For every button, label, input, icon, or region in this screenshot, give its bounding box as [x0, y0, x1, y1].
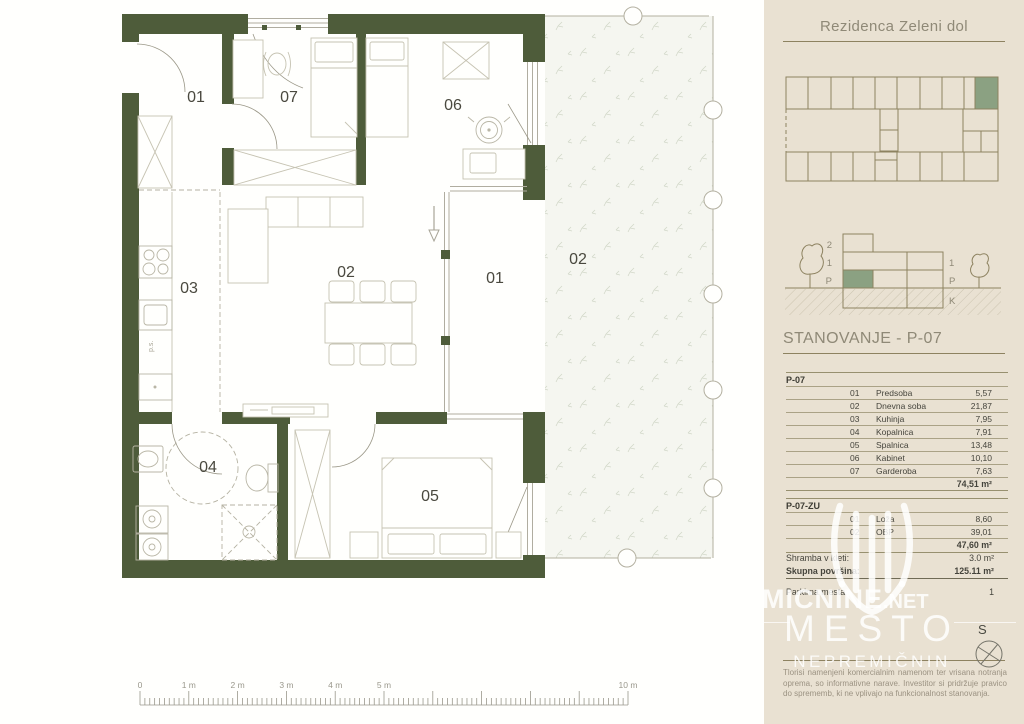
- scale-label: 3 m: [279, 680, 293, 690]
- room-bathroom: [133, 424, 278, 560]
- scale-label: 10 m: [619, 680, 638, 690]
- room-label: 01: [486, 270, 504, 287]
- scale-label: 0: [138, 680, 143, 690]
- room-label: 01: [187, 89, 205, 106]
- highlighted-unit: [975, 77, 998, 109]
- scale-bar: 01 m2 m3 m4 m5 m10 m: [138, 680, 638, 705]
- area-row: 01Loža8,60: [786, 512, 1008, 525]
- room-label: 03: [180, 280, 198, 297]
- page: p.s.: [0, 0, 1024, 724]
- scale-label: 1 m: [182, 680, 196, 690]
- svg-text:1: 1: [949, 258, 954, 269]
- area-row: 02Dnevna soba21,87: [786, 399, 1008, 412]
- area-group-total: 74,51 m²: [786, 477, 1008, 491]
- area-table: P-0701Predsoba5,5702Dnevna soba21,8703Ku…: [786, 372, 1008, 560]
- highlighted-floor: [843, 270, 873, 288]
- area-row: 03Kuhinja7,95: [786, 412, 1008, 425]
- brand-name: MESTO: [764, 608, 980, 650]
- loggia-glazing: [441, 187, 527, 420]
- room-garderoba: [233, 38, 357, 185]
- floor-plan-panel: p.s.: [0, 0, 764, 724]
- room-label: 02: [569, 251, 587, 268]
- unit-title: STANOVANJE - P-07: [783, 330, 1005, 354]
- room-bedroom: [295, 424, 521, 558]
- svg-text:K: K: [949, 296, 956, 307]
- svg-text:1: 1: [827, 258, 832, 269]
- scale-label: 5 m: [377, 680, 391, 690]
- area-group: P-07-ZU01Loža8,6002OBP39,0147,60 m²: [786, 498, 1008, 552]
- area-row: 05Spalnica13,48: [786, 438, 1008, 451]
- area-row: 04Kopalnica7,91: [786, 425, 1008, 438]
- area-row: 06Kabinet10,10: [786, 451, 1008, 464]
- svg-text:S: S: [978, 622, 987, 637]
- north-arrow-icon: S: [962, 616, 1012, 674]
- room-label: 06: [444, 97, 462, 114]
- svg-text:P: P: [949, 276, 955, 287]
- summary-row: Skupna površina:125.11 m²: [786, 565, 1008, 579]
- summary-rows: Shramba v kleti:3.0 m²Skupna površina:12…: [786, 552, 1008, 598]
- area-group-header: P-07-ZU: [786, 498, 1008, 512]
- sidebar: Rezidenca Zeleni dol: [764, 0, 1024, 724]
- room-label: 04: [199, 459, 217, 476]
- svg-text:P: P: [826, 276, 832, 287]
- area-row: 01Predsoba5,57: [786, 386, 1008, 399]
- room-living: [220, 192, 439, 417]
- kabinet-window: [508, 62, 538, 145]
- floor-plan-svg: p.s.: [0, 0, 764, 724]
- terrace-obp: [545, 7, 722, 567]
- area-row: 07Garderoba7,63: [786, 464, 1008, 477]
- area-row: 02OBP39,01: [786, 525, 1008, 538]
- project-title: Rezidenca Zeleni dol: [783, 18, 1005, 42]
- area-group: P-0701Predsoba5,5702Dnevna soba21,8703Ku…: [786, 372, 1008, 491]
- summary-row: Parkirna mesta:1: [786, 586, 1008, 599]
- building-section: 2 1 P 1 P K: [785, 230, 1001, 324]
- room-label: 02: [337, 264, 355, 281]
- ps-label: p.s.: [148, 341, 155, 352]
- scale-label: 4 m: [328, 680, 342, 690]
- svg-text:2: 2: [827, 240, 832, 251]
- room-kitchen: p.s.: [139, 192, 172, 412]
- room-label: 07: [280, 89, 298, 106]
- scale-label: 2 m: [231, 680, 245, 690]
- brand-rule-left: [764, 622, 790, 623]
- room-label: 05: [421, 488, 439, 505]
- site-key-plan: [785, 76, 1001, 182]
- entry-arrow-icon: [429, 206, 439, 241]
- area-group-total: 47,60 m²: [786, 538, 1008, 552]
- summary-row: Shramba v kleti:3.0 m²: [786, 552, 1008, 565]
- area-group-header: P-07: [786, 372, 1008, 386]
